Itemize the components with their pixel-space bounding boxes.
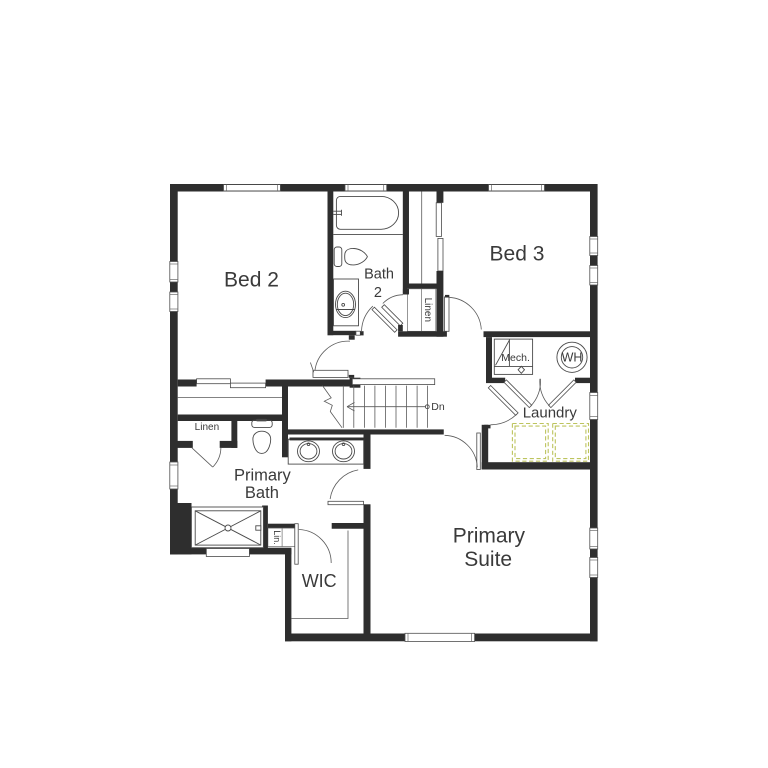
svg-text:Dn: Dn [431, 401, 445, 413]
svg-text:Mech.: Mech. [501, 352, 530, 364]
svg-text:Bed 3: Bed 3 [490, 243, 545, 266]
svg-text:Bed 2: Bed 2 [224, 269, 279, 292]
svg-text:Primary: Primary [234, 466, 292, 484]
svg-text:Primary: Primary [453, 525, 526, 548]
svg-text:Laundry: Laundry [523, 405, 578, 422]
svg-text:Linen: Linen [195, 422, 219, 433]
svg-text:Lin.: Lin. [272, 530, 282, 545]
svg-text:Linen: Linen [422, 298, 433, 322]
svg-text:2: 2 [374, 285, 382, 301]
svg-text:Suite: Suite [464, 548, 512, 571]
svg-text:Bath: Bath [364, 266, 394, 282]
svg-text:Bath: Bath [245, 484, 279, 502]
svg-text:WH: WH [562, 350, 583, 364]
svg-text:WIC: WIC [302, 571, 337, 591]
